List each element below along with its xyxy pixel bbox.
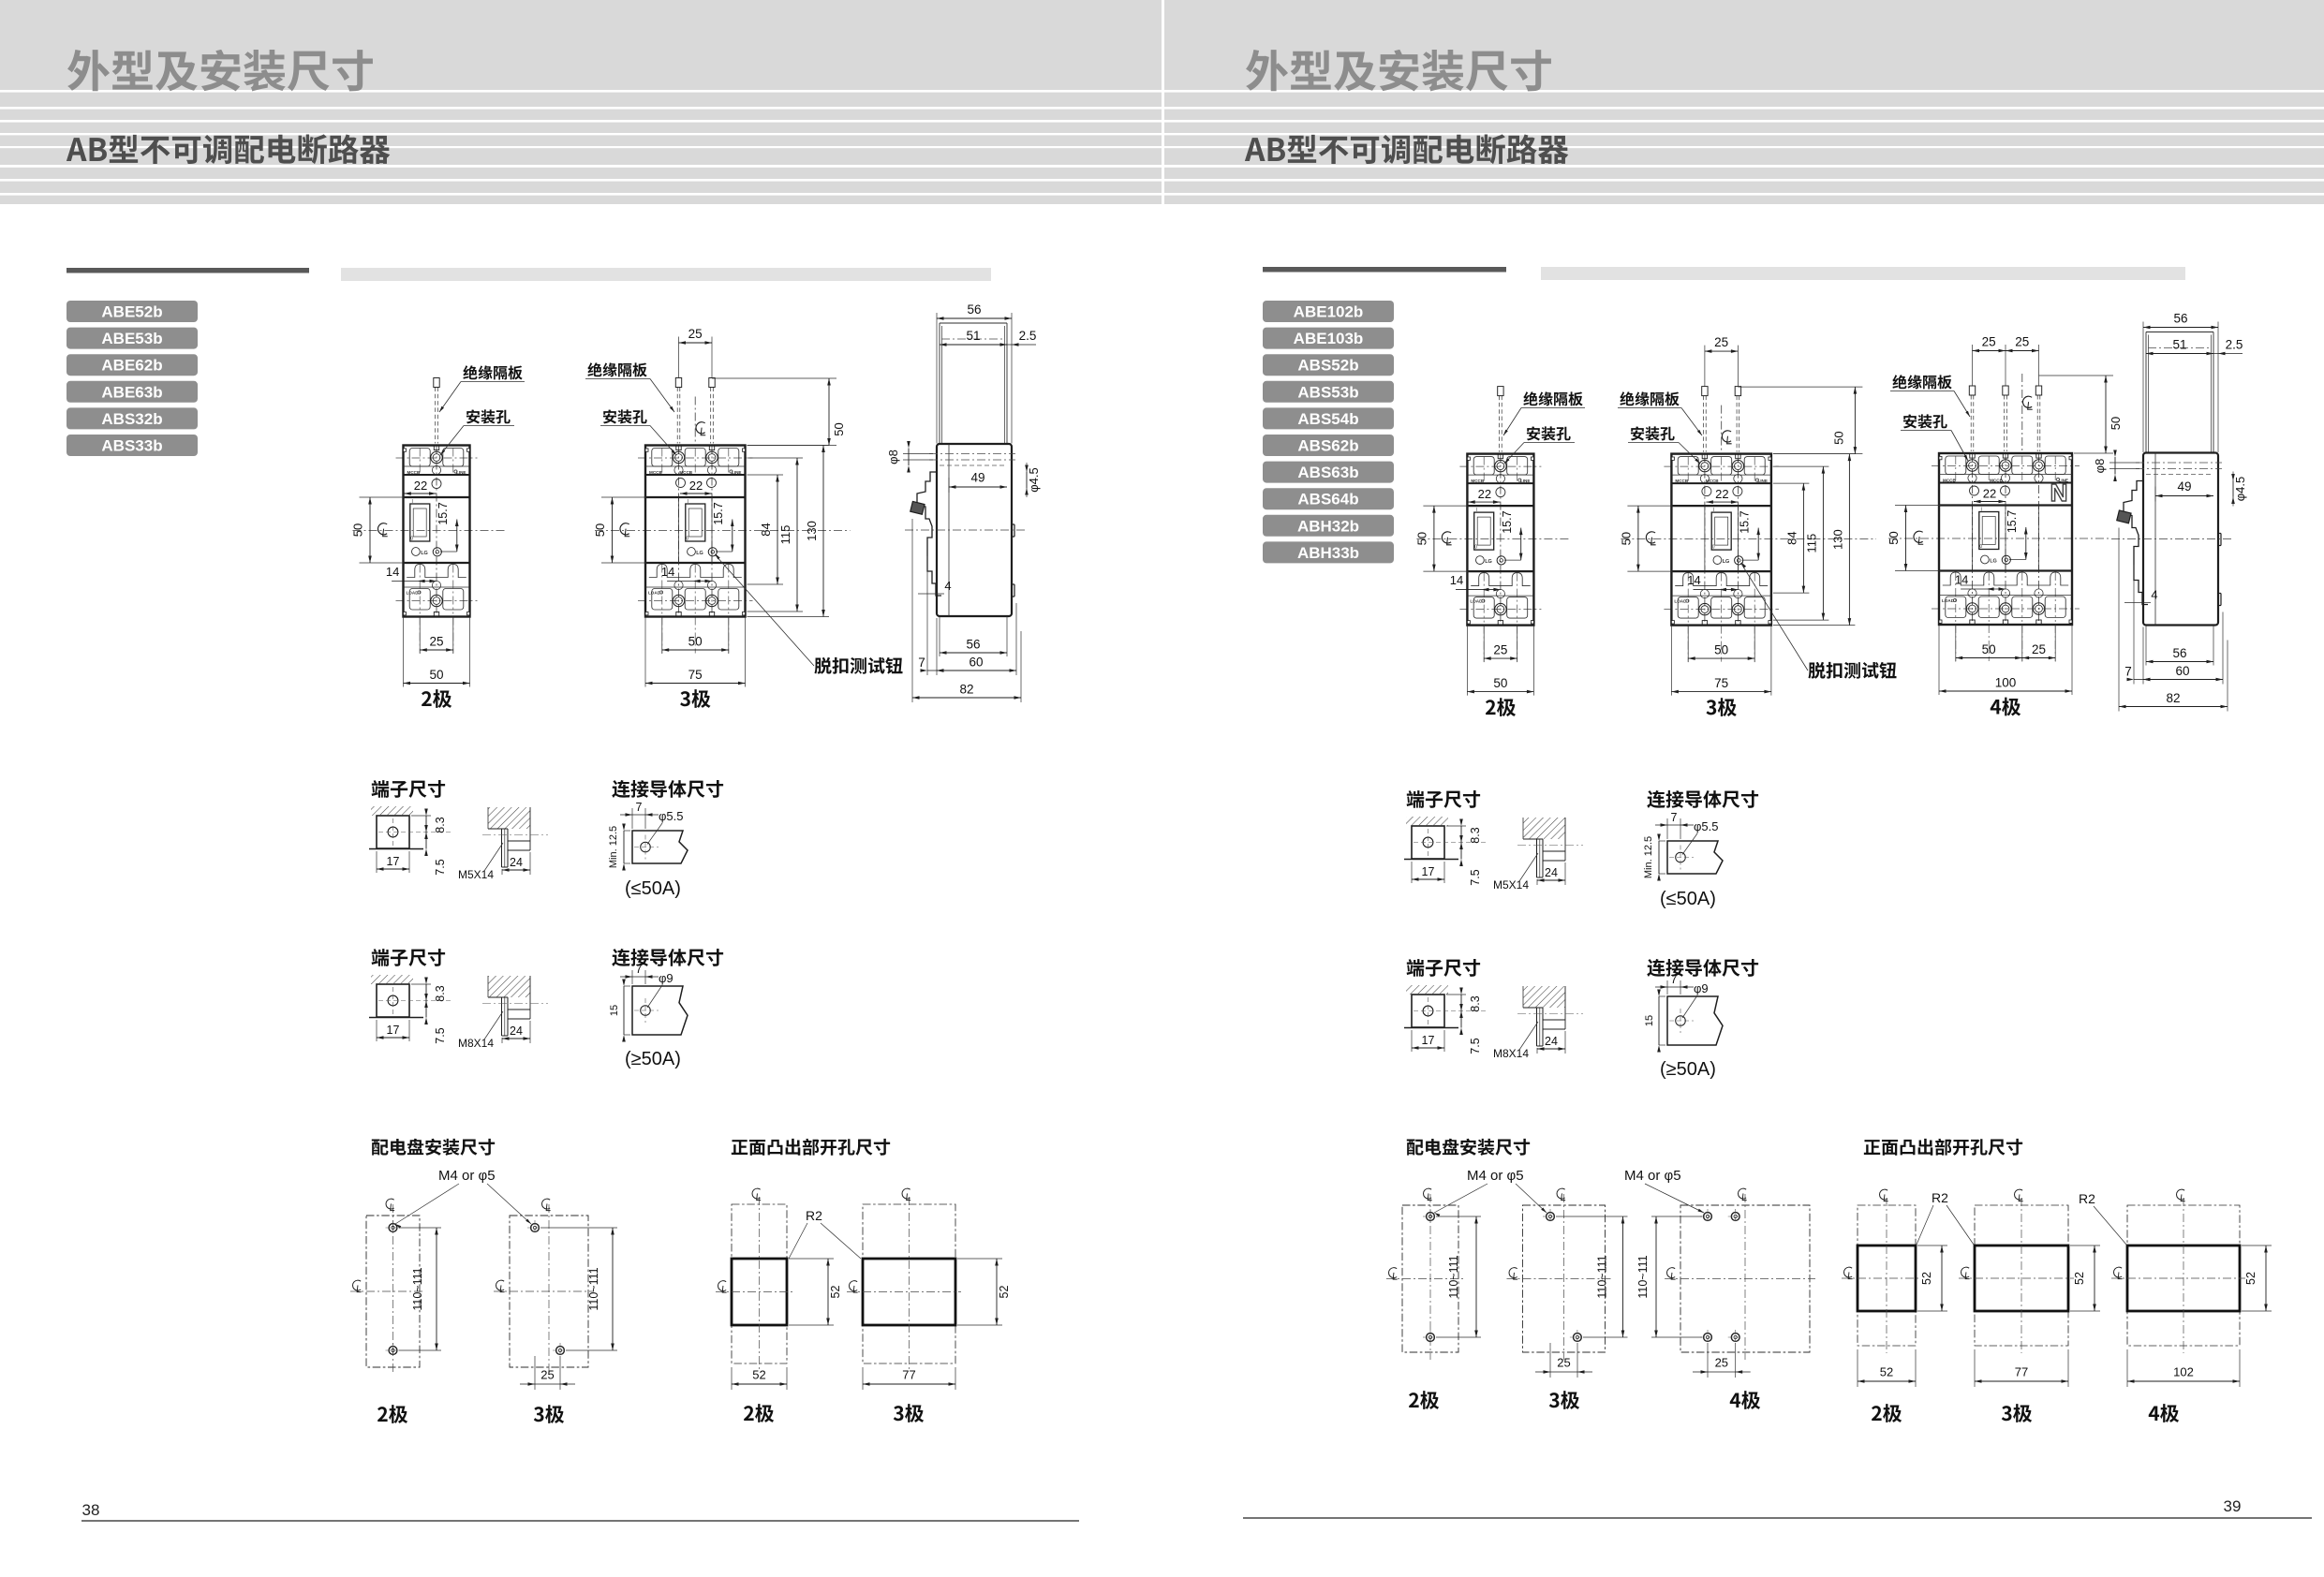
svg-text:MCCB: MCCB <box>1990 479 2003 483</box>
svg-text:LG: LG <box>696 551 703 556</box>
svg-text:7.5: 7.5 <box>1469 1038 1482 1054</box>
svg-text:51: 51 <box>966 329 980 343</box>
svg-text:φ8: φ8 <box>2093 459 2107 474</box>
svg-text:24: 24 <box>510 856 523 869</box>
svg-text:LOAD: LOAD <box>1942 598 1955 603</box>
svg-text:22: 22 <box>1478 487 1491 501</box>
svg-text:MCCB: MCCB <box>1675 479 1688 483</box>
svg-text:110~111: 110~111 <box>1636 1255 1650 1298</box>
svg-text:8.3: 8.3 <box>1469 995 1482 1011</box>
svg-text:M5X14: M5X14 <box>1493 878 1529 892</box>
svg-text:110~111: 110~111 <box>587 1267 600 1310</box>
svg-text:50: 50 <box>1414 532 1428 545</box>
svg-text:15.7: 15.7 <box>1501 510 1514 533</box>
svg-text:ABE53b: ABE53b <box>101 330 162 347</box>
svg-text:LINE: LINE <box>1520 479 1530 483</box>
svg-text:82: 82 <box>2166 691 2180 705</box>
svg-text:51: 51 <box>2172 338 2186 352</box>
svg-text:MCCB: MCCB <box>649 470 662 475</box>
svg-text:50: 50 <box>832 422 846 435</box>
svg-text:14: 14 <box>1687 573 1700 587</box>
svg-text:50: 50 <box>351 523 365 537</box>
svg-text:14: 14 <box>1955 573 1968 587</box>
svg-text:MCCB: MCCB <box>1706 479 1719 483</box>
svg-text:25: 25 <box>688 327 703 341</box>
svg-text:7: 7 <box>2124 665 2132 679</box>
svg-text:15.7: 15.7 <box>437 502 450 524</box>
svg-text:MCCB: MCCB <box>1943 479 1956 483</box>
svg-text:R2: R2 <box>1932 1190 1948 1205</box>
svg-text:56: 56 <box>2173 312 2187 326</box>
svg-text:22: 22 <box>414 479 427 493</box>
svg-text:ABH33b: ABH33b <box>1297 544 1359 562</box>
svg-text:77: 77 <box>2015 1365 2028 1379</box>
svg-text:15.7: 15.7 <box>712 502 725 524</box>
svg-text:17: 17 <box>387 1024 400 1037</box>
svg-text:LG: LG <box>421 551 428 556</box>
svg-text:(≤50A): (≤50A) <box>625 878 681 899</box>
svg-text:22: 22 <box>689 479 703 493</box>
svg-text:22: 22 <box>1715 487 1728 501</box>
svg-text:ABE52b: ABE52b <box>101 303 162 321</box>
svg-text:15.7: 15.7 <box>2006 510 2019 533</box>
svg-text:8.3: 8.3 <box>434 985 447 1001</box>
svg-text:φ5.5: φ5.5 <box>1694 819 1719 833</box>
svg-text:φ4.5: φ4.5 <box>1027 467 1041 493</box>
svg-text:7: 7 <box>1671 973 1678 986</box>
svg-text:LOAD: LOAD <box>407 591 420 596</box>
svg-text:110~111: 110~111 <box>1447 1255 1460 1298</box>
svg-text:38: 38 <box>82 1501 100 1519</box>
svg-text:0: 0 <box>1979 544 1982 550</box>
svg-text:R2: R2 <box>2079 1191 2095 1206</box>
svg-text:50: 50 <box>1714 643 1728 657</box>
svg-text:22: 22 <box>1983 487 1996 501</box>
svg-text:52: 52 <box>1920 1272 1933 1285</box>
svg-text:8.3: 8.3 <box>1469 827 1482 843</box>
svg-text:14: 14 <box>661 565 674 579</box>
svg-text:84: 84 <box>1784 531 1799 544</box>
svg-text:14: 14 <box>386 565 399 579</box>
svg-text:ABE103b: ABE103b <box>1294 330 1364 347</box>
svg-text:25: 25 <box>1982 335 1996 349</box>
svg-text:ABE62b: ABE62b <box>101 357 162 375</box>
svg-text:2.5: 2.5 <box>1019 329 1037 343</box>
svg-text:0: 0 <box>1474 545 1477 551</box>
svg-text:52: 52 <box>2244 1272 2257 1285</box>
svg-text:130: 130 <box>805 521 819 541</box>
svg-text:ABS54b: ABS54b <box>1297 410 1358 428</box>
svg-text:0: 0 <box>1712 545 1715 551</box>
svg-text:(≥50A): (≥50A) <box>1660 1059 1716 1080</box>
svg-text:I: I <box>688 499 688 505</box>
svg-text:15.7: 15.7 <box>1739 510 1752 533</box>
svg-text:60: 60 <box>969 656 983 670</box>
svg-text:25: 25 <box>1493 643 1507 657</box>
svg-text:50: 50 <box>1493 676 1507 690</box>
svg-text:60: 60 <box>2175 664 2189 678</box>
svg-text:49: 49 <box>970 471 984 485</box>
svg-text:ABH32b: ABH32b <box>1297 517 1359 535</box>
svg-text:130: 130 <box>1830 529 1844 550</box>
svg-text:50: 50 <box>1982 642 1996 656</box>
svg-text:(≥50A): (≥50A) <box>625 1049 681 1069</box>
svg-text:LOAD: LOAD <box>648 591 661 596</box>
svg-text:56: 56 <box>2172 646 2186 660</box>
svg-text:25: 25 <box>2015 335 2029 349</box>
svg-text:14: 14 <box>1450 573 1463 587</box>
svg-text:52: 52 <box>829 1286 842 1299</box>
svg-text:102: 102 <box>2173 1365 2194 1379</box>
svg-text:ABS33b: ABS33b <box>101 437 162 455</box>
svg-text:LG: LG <box>1485 559 1492 565</box>
svg-text:7: 7 <box>1671 811 1678 824</box>
svg-text:M4 or φ5: M4 or φ5 <box>1467 1168 1524 1184</box>
svg-text:25: 25 <box>429 635 443 649</box>
svg-text:77: 77 <box>902 1368 915 1382</box>
svg-text:φ4.5: φ4.5 <box>2233 477 2247 502</box>
svg-text:LOAD: LOAD <box>1674 599 1687 604</box>
svg-text:50: 50 <box>593 523 607 537</box>
svg-text:75: 75 <box>688 668 703 682</box>
svg-text:M4 or φ5: M4 or φ5 <box>438 1168 496 1184</box>
svg-text:M4 or φ5: M4 or φ5 <box>1624 1168 1681 1184</box>
svg-text:25: 25 <box>1557 1356 1570 1370</box>
svg-text:φ8: φ8 <box>886 450 900 464</box>
svg-text:50: 50 <box>688 635 703 649</box>
svg-text:7: 7 <box>918 656 925 670</box>
svg-text:7.5: 7.5 <box>434 1027 447 1043</box>
svg-text:15: 15 <box>1644 1015 1655 1026</box>
svg-text:ABS62b: ABS62b <box>1297 437 1358 455</box>
svg-text:39: 39 <box>2224 1497 2242 1515</box>
svg-text:0: 0 <box>686 537 688 542</box>
svg-text:MCCB: MCCB <box>1471 479 1484 483</box>
svg-text:56: 56 <box>966 638 980 652</box>
svg-text:56: 56 <box>967 302 981 317</box>
svg-text:0: 0 <box>410 537 413 542</box>
svg-text:ABE102b: ABE102b <box>1294 303 1364 321</box>
svg-text:MCCB: MCCB <box>407 470 421 475</box>
svg-text:25: 25 <box>2032 642 2046 656</box>
svg-text:LG: LG <box>1990 559 1997 565</box>
svg-text:M5X14: M5X14 <box>458 868 494 881</box>
svg-text:(≤50A): (≤50A) <box>1660 889 1716 909</box>
svg-text:7: 7 <box>636 963 643 976</box>
svg-text:115: 115 <box>778 525 792 545</box>
svg-text:82: 82 <box>959 683 973 697</box>
svg-text:M8X14: M8X14 <box>458 1037 494 1050</box>
svg-text:I: I <box>1476 508 1477 513</box>
svg-text:110~111: 110~111 <box>411 1267 424 1310</box>
svg-text:24: 24 <box>510 1024 523 1038</box>
svg-text:15: 15 <box>609 1005 620 1016</box>
svg-text:φ9: φ9 <box>659 971 674 985</box>
svg-text:MCCB: MCCB <box>679 470 692 475</box>
svg-text:I: I <box>412 499 413 505</box>
svg-text:75: 75 <box>1714 676 1728 690</box>
svg-text:17: 17 <box>1422 865 1435 878</box>
svg-text:LOAD: LOAD <box>1470 599 1483 604</box>
svg-text:Min. 12.5: Min. 12.5 <box>1643 836 1654 878</box>
svg-text:50: 50 <box>429 668 443 682</box>
svg-text:25: 25 <box>540 1368 554 1382</box>
svg-text:4: 4 <box>944 579 951 593</box>
svg-text:25: 25 <box>1715 1356 1728 1370</box>
svg-text:50: 50 <box>1831 431 1845 444</box>
svg-text:ABS63b: ABS63b <box>1297 464 1358 481</box>
svg-text:7.5: 7.5 <box>1469 869 1482 885</box>
svg-text:24: 24 <box>1545 1035 1558 1048</box>
svg-text:52: 52 <box>998 1286 1011 1299</box>
svg-text:2.5: 2.5 <box>2226 338 2243 352</box>
svg-text:ABS32b: ABS32b <box>101 410 162 428</box>
svg-text:52: 52 <box>1880 1365 1893 1379</box>
svg-text:52: 52 <box>752 1368 765 1382</box>
svg-text:24: 24 <box>1545 866 1558 879</box>
svg-text:17: 17 <box>1422 1034 1435 1047</box>
svg-text:110~111: 110~111 <box>1596 1255 1609 1298</box>
svg-text:LG: LG <box>1723 559 1730 565</box>
svg-text:100: 100 <box>1995 676 2017 690</box>
svg-text:LINE: LINE <box>732 470 741 475</box>
svg-text:Min. 12.5: Min. 12.5 <box>608 826 619 868</box>
svg-text:49: 49 <box>2177 479 2191 494</box>
svg-text:LINE: LINE <box>1757 479 1767 483</box>
svg-text:LINE: LINE <box>456 470 466 475</box>
svg-text:M8X14: M8X14 <box>1493 1047 1529 1060</box>
svg-text:ABS64b: ABS64b <box>1297 491 1358 508</box>
svg-text:7.5: 7.5 <box>434 859 447 875</box>
svg-text:ABS52b: ABS52b <box>1297 357 1358 375</box>
svg-text:17: 17 <box>387 855 400 868</box>
svg-text:50: 50 <box>1887 531 1901 544</box>
svg-text:115: 115 <box>1804 534 1818 553</box>
svg-text:ABE63b: ABE63b <box>101 383 162 401</box>
svg-text:4: 4 <box>2151 588 2157 602</box>
svg-text:50: 50 <box>1619 532 1633 545</box>
svg-text:84: 84 <box>759 523 773 536</box>
svg-text:R2: R2 <box>806 1208 822 1223</box>
svg-text:N: N <box>2050 479 2068 507</box>
svg-text:φ5.5: φ5.5 <box>659 809 684 823</box>
svg-text:50: 50 <box>2109 417 2123 430</box>
svg-text:I: I <box>1981 508 1982 513</box>
svg-text:25: 25 <box>1714 335 1728 349</box>
svg-text:7: 7 <box>636 801 643 814</box>
svg-text:I: I <box>1713 508 1714 513</box>
svg-text:52: 52 <box>2073 1272 2086 1285</box>
svg-text:φ9: φ9 <box>1694 981 1709 995</box>
svg-text:8.3: 8.3 <box>434 817 447 833</box>
svg-text:ABS53b: ABS53b <box>1297 383 1358 401</box>
